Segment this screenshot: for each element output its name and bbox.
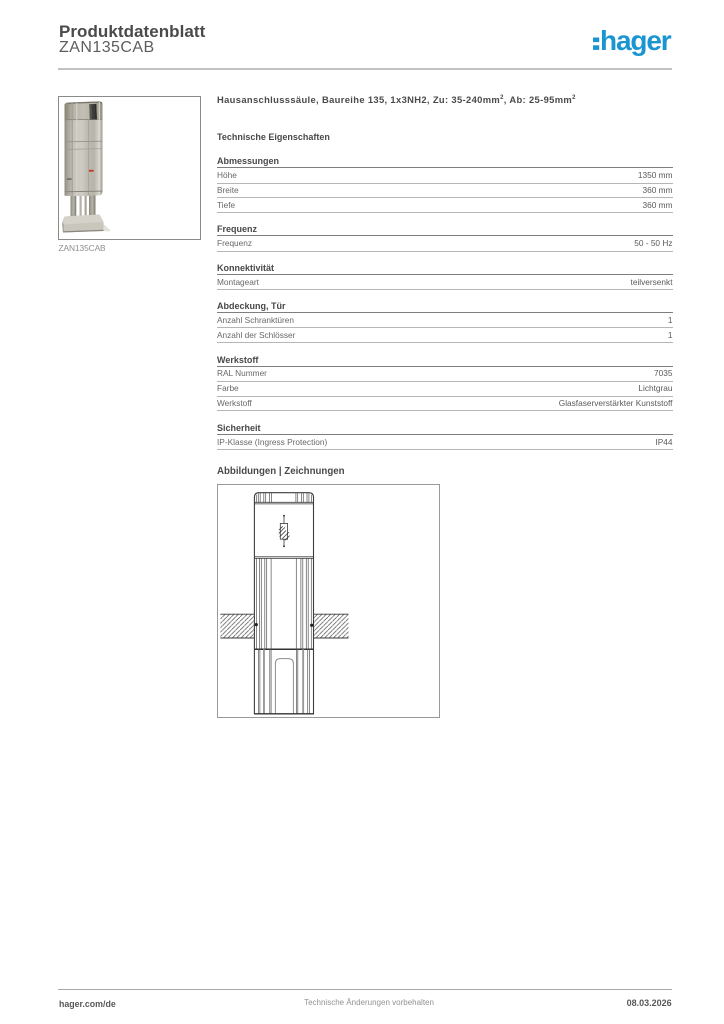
svg-text:hager: hager: [600, 26, 672, 56]
